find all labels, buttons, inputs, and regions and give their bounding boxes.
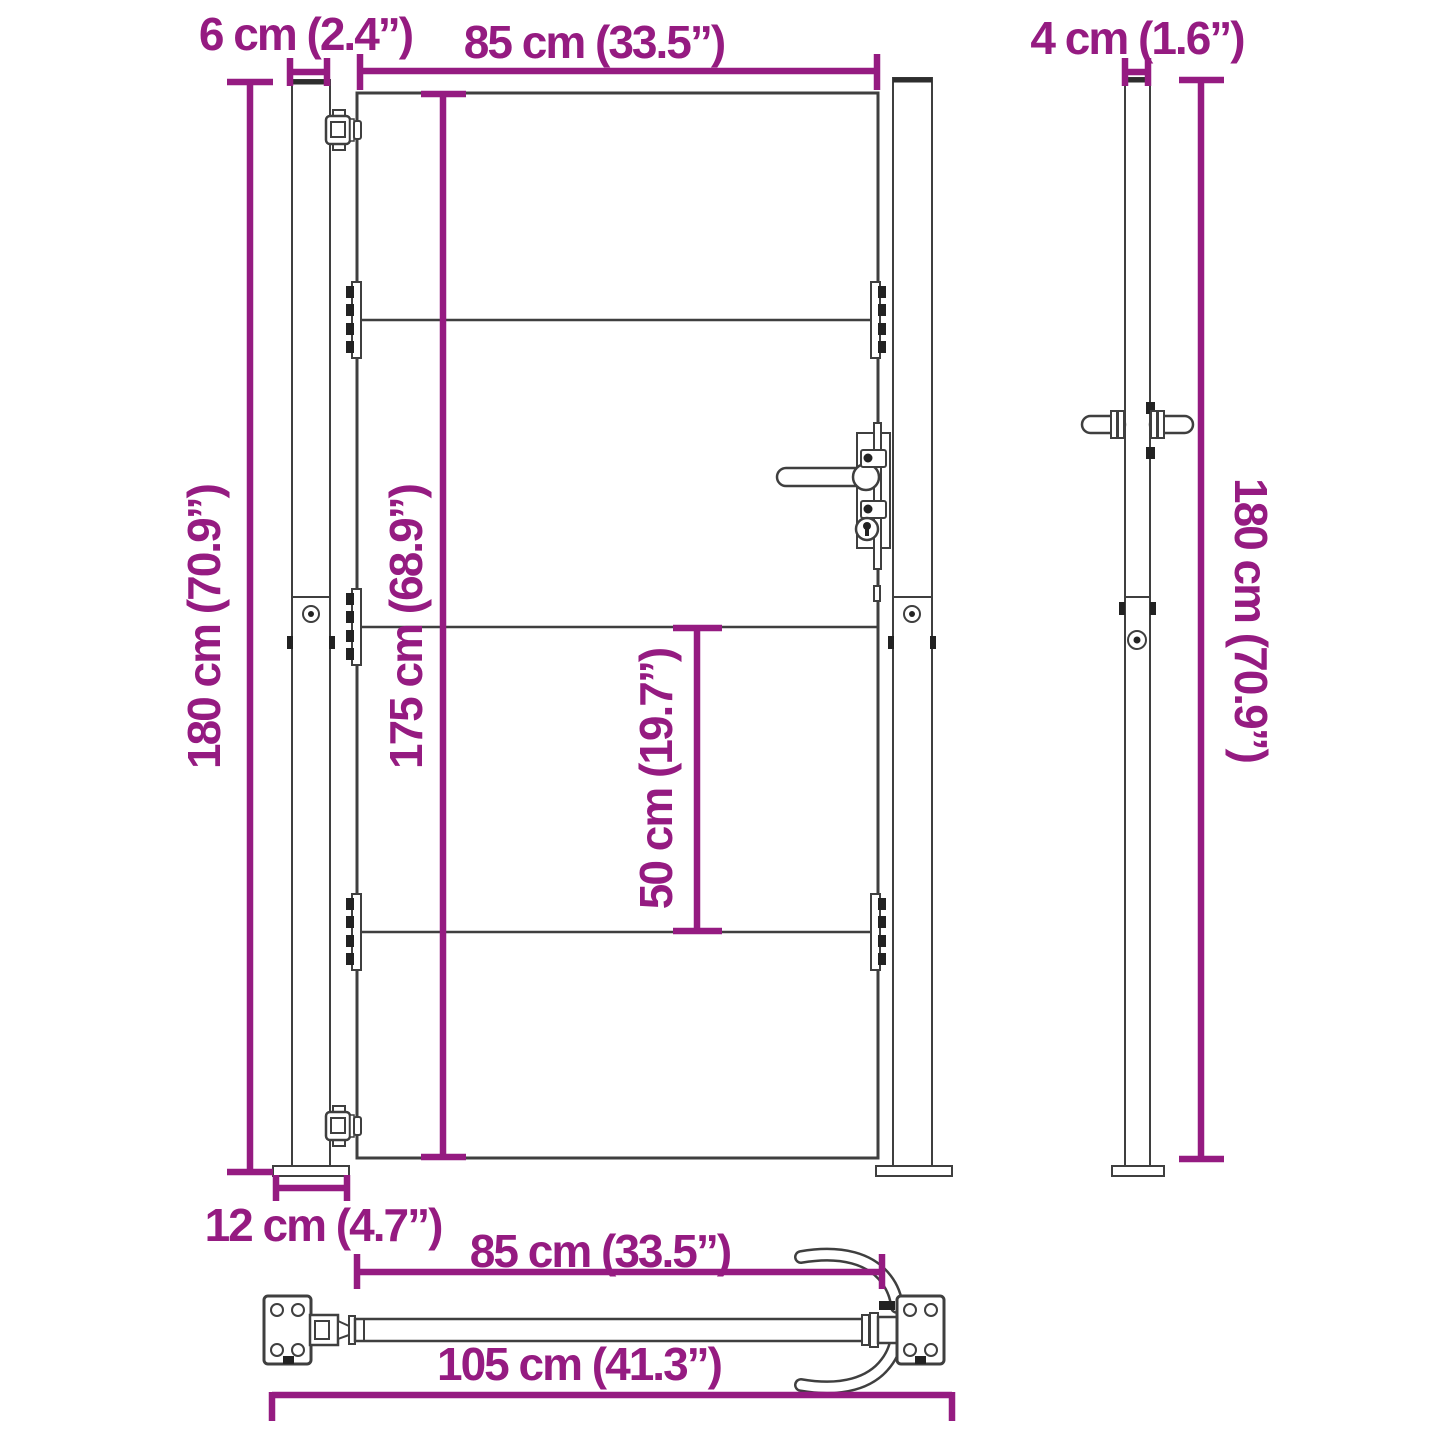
dim-label-panel-spacing: 50 cm (19.7”) xyxy=(632,649,680,909)
gate-panel xyxy=(357,93,878,1158)
left-mount-plate xyxy=(264,1296,355,1364)
dim-line-post-height-left xyxy=(227,82,273,1172)
right-post xyxy=(876,78,952,1176)
dim-label-post-height-left: 180 cm (70.9”) xyxy=(180,485,228,769)
dim-label-total-width: 105 cm (41.3”) xyxy=(418,1340,740,1388)
dim-line-base-plate-width xyxy=(276,1175,347,1201)
dim-label-post-height-right: 180 cm (70.9”) xyxy=(1227,478,1275,762)
dim-label-post-depth-side: 4 cm (1.6”) xyxy=(1018,14,1256,62)
dim-label-base-plate-width: 12 cm (4.7”) xyxy=(192,1201,454,1249)
side-view xyxy=(1082,78,1193,1176)
right-mount-plate xyxy=(862,1296,944,1364)
dim-line-total-width xyxy=(272,1392,952,1421)
dim-label-gate-width-bottom: 85 cm (33.5”) xyxy=(446,1227,754,1275)
dim-line-post-height-right xyxy=(1179,80,1224,1159)
front-view xyxy=(273,78,952,1176)
side-post xyxy=(1112,78,1164,1176)
left-post xyxy=(273,80,349,1176)
dim-label-post-width-front: 6 cm (2.4”) xyxy=(183,10,428,58)
dim-label-gate-width-top: 85 cm (33.5”) xyxy=(438,18,750,66)
gate-dimension-diagram: 6 cm (2.4”) 85 cm (33.5”) 4 cm (1.6”) 18… xyxy=(0,0,1445,1445)
dim-label-gate-height: 175 cm (68.9”) xyxy=(382,485,430,769)
